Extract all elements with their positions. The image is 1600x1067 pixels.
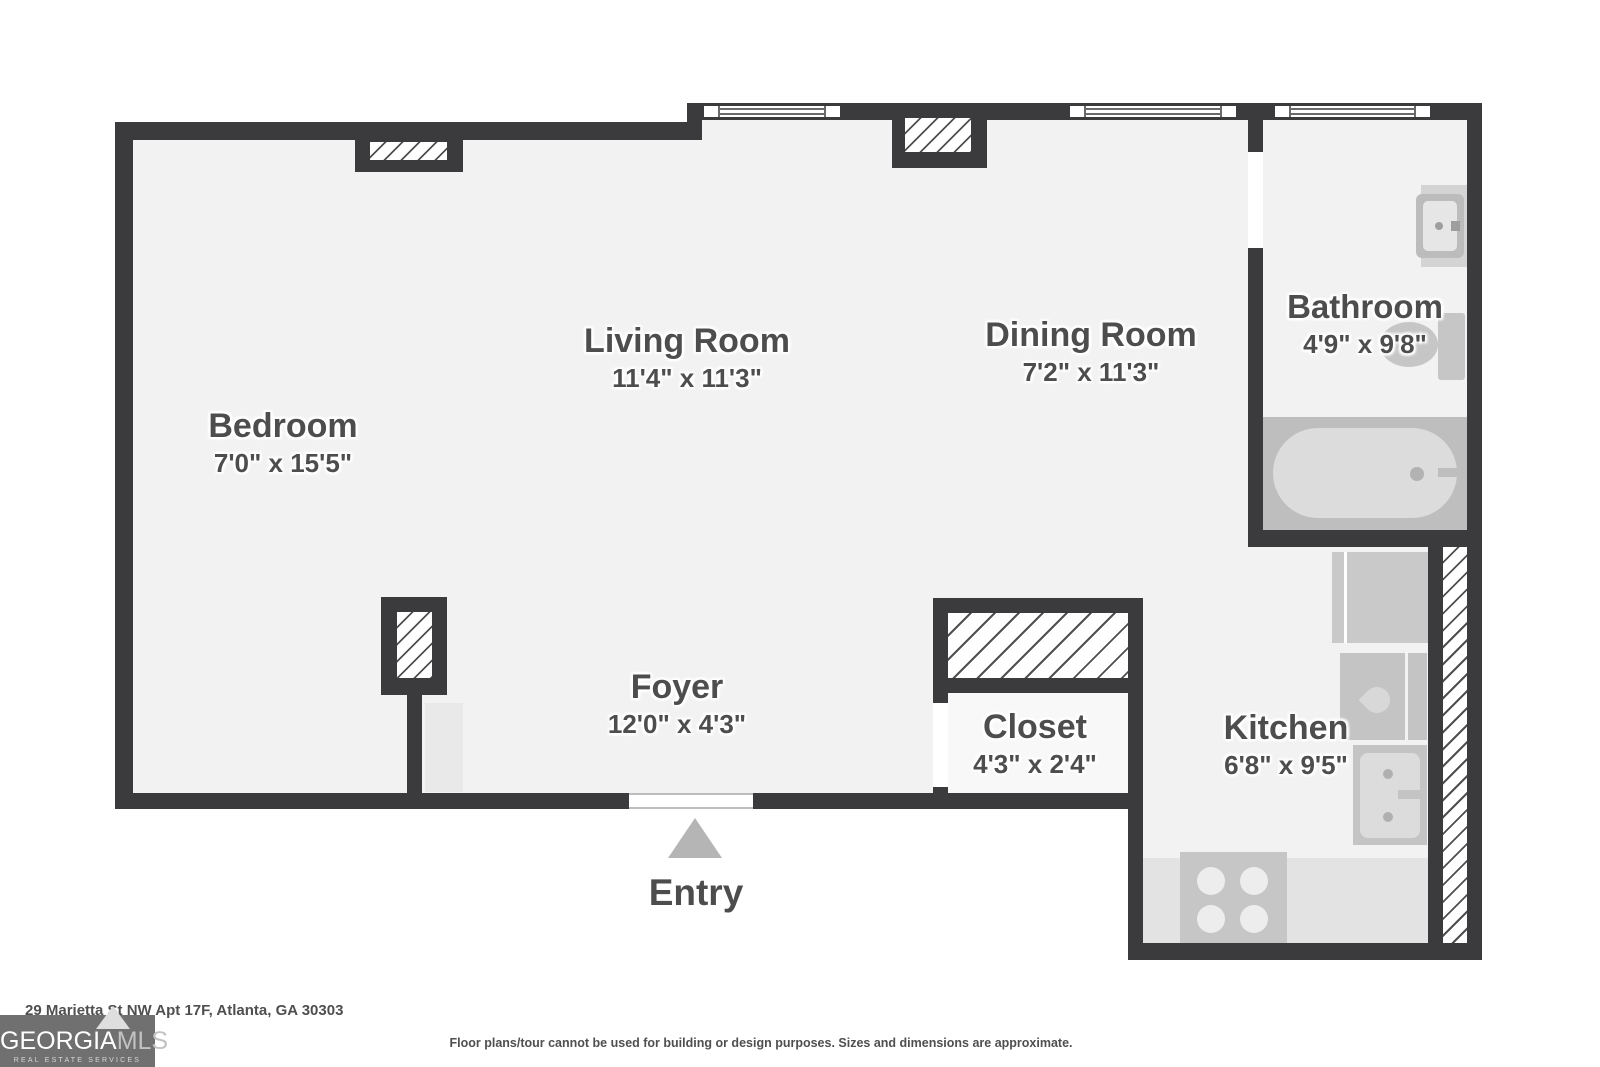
bathtub-icon xyxy=(1273,428,1457,518)
room-dims: 12'0" x 4'3" xyxy=(608,707,746,741)
sink-drain-dot xyxy=(1435,222,1443,230)
room-label-dining-room: Dining Room 7'2" x 11'3" xyxy=(985,315,1197,389)
logo-mls: MLS xyxy=(117,1027,168,1055)
sink-faucet xyxy=(1451,221,1460,231)
room-dims: 11'4" x 11'3" xyxy=(584,361,790,395)
closet-shaft-hatch xyxy=(948,613,1128,678)
window-icon xyxy=(1068,104,1238,119)
room-label-bedroom: Bedroom 7'0" x 15'5" xyxy=(208,406,357,480)
wall-kitchen-left xyxy=(1128,598,1143,960)
room-name: Kitchen xyxy=(1224,708,1349,748)
logo-wordmark: GEORGIAMLS xyxy=(0,1028,155,1054)
tub-drain xyxy=(1410,467,1424,481)
room-name: Living Room xyxy=(584,321,790,361)
room-name: Bedroom xyxy=(208,406,357,446)
wall-kitchen-chase-inner xyxy=(1428,547,1443,943)
room-dims: 6'8" x 9'5" xyxy=(1224,748,1349,782)
logo-tagline: REAL ESTATE SERVICES xyxy=(0,1057,155,1064)
logo-georgia: GEORGIA xyxy=(0,1027,117,1055)
disclaimer-text: Floor plans/tour cannot be used for buil… xyxy=(449,1036,1072,1050)
room-label-closet: Closet 4'3" x 2'4" xyxy=(973,707,1097,781)
wall-foyer-stub xyxy=(407,695,422,793)
room-label-bathroom: Bathroom 4'9" x 9'8" xyxy=(1287,287,1443,361)
refrigerator-door-line xyxy=(1344,552,1347,643)
room-label-living-room: Living Room 11'4" x 11'3" xyxy=(584,321,790,395)
room-dims: 7'0" x 15'5" xyxy=(208,446,357,480)
wall-closet-left xyxy=(933,598,948,703)
wall-left-outer xyxy=(115,122,133,809)
room-dims: 7'2" x 11'3" xyxy=(985,355,1197,389)
wall-closet-mid xyxy=(933,678,1143,693)
entry-arrow-icon xyxy=(668,818,722,858)
dishwasher-knob-top xyxy=(1383,769,1393,779)
room-label-kitchen: Kitchen 6'8" x 9'5" xyxy=(1224,708,1349,782)
room-label-foyer: Foyer 12'0" x 4'3" xyxy=(608,667,746,741)
wall-closet-top xyxy=(933,598,1143,613)
room-dims: 4'9" x 9'8" xyxy=(1287,327,1443,361)
burner-4 xyxy=(1240,905,1268,933)
georgia-mls-logo: GEORGIAMLS REAL ESTATE SERVICES xyxy=(0,1015,155,1067)
room-name: Closet xyxy=(973,707,1097,747)
shaft-hatch-top-center xyxy=(905,118,971,152)
kitchen-chase-hatch xyxy=(1443,547,1467,943)
roof-icon xyxy=(96,1006,130,1029)
stove-cooktop-icon xyxy=(1180,852,1287,943)
window-icon xyxy=(702,104,842,119)
column-hatch-foyer xyxy=(397,612,432,678)
room-dims: 4'3" x 2'4" xyxy=(973,747,1097,781)
entry-door-opening xyxy=(629,793,753,809)
room-name: Dining Room xyxy=(985,315,1197,355)
burner-1 xyxy=(1197,867,1225,895)
wall-bathroom-bottom xyxy=(1248,530,1482,547)
wall-closet-left-stub xyxy=(933,787,948,809)
foyer-door-panel xyxy=(425,703,463,792)
dishwasher-notch xyxy=(1398,790,1427,799)
room-name: Bathroom xyxy=(1287,287,1443,327)
tub-handle xyxy=(1438,468,1457,477)
shaft-hatch-bedroom-top xyxy=(370,142,447,160)
wall-kitchen-bottom xyxy=(1128,943,1482,960)
kitchen-counter-divider xyxy=(1405,653,1408,740)
floorplan-page: Bedroom 7'0" x 15'5" Living Room 11'4" x… xyxy=(0,0,1600,1067)
room-name: Foyer xyxy=(608,667,746,707)
closet-door-opening xyxy=(933,703,948,787)
bathroom-door-opening xyxy=(1248,152,1263,248)
entry-label: Entry xyxy=(649,872,744,914)
window-icon xyxy=(1273,104,1432,119)
burner-3 xyxy=(1197,905,1225,933)
burner-2 xyxy=(1240,867,1268,895)
dishwasher-knob-bottom xyxy=(1383,812,1393,822)
